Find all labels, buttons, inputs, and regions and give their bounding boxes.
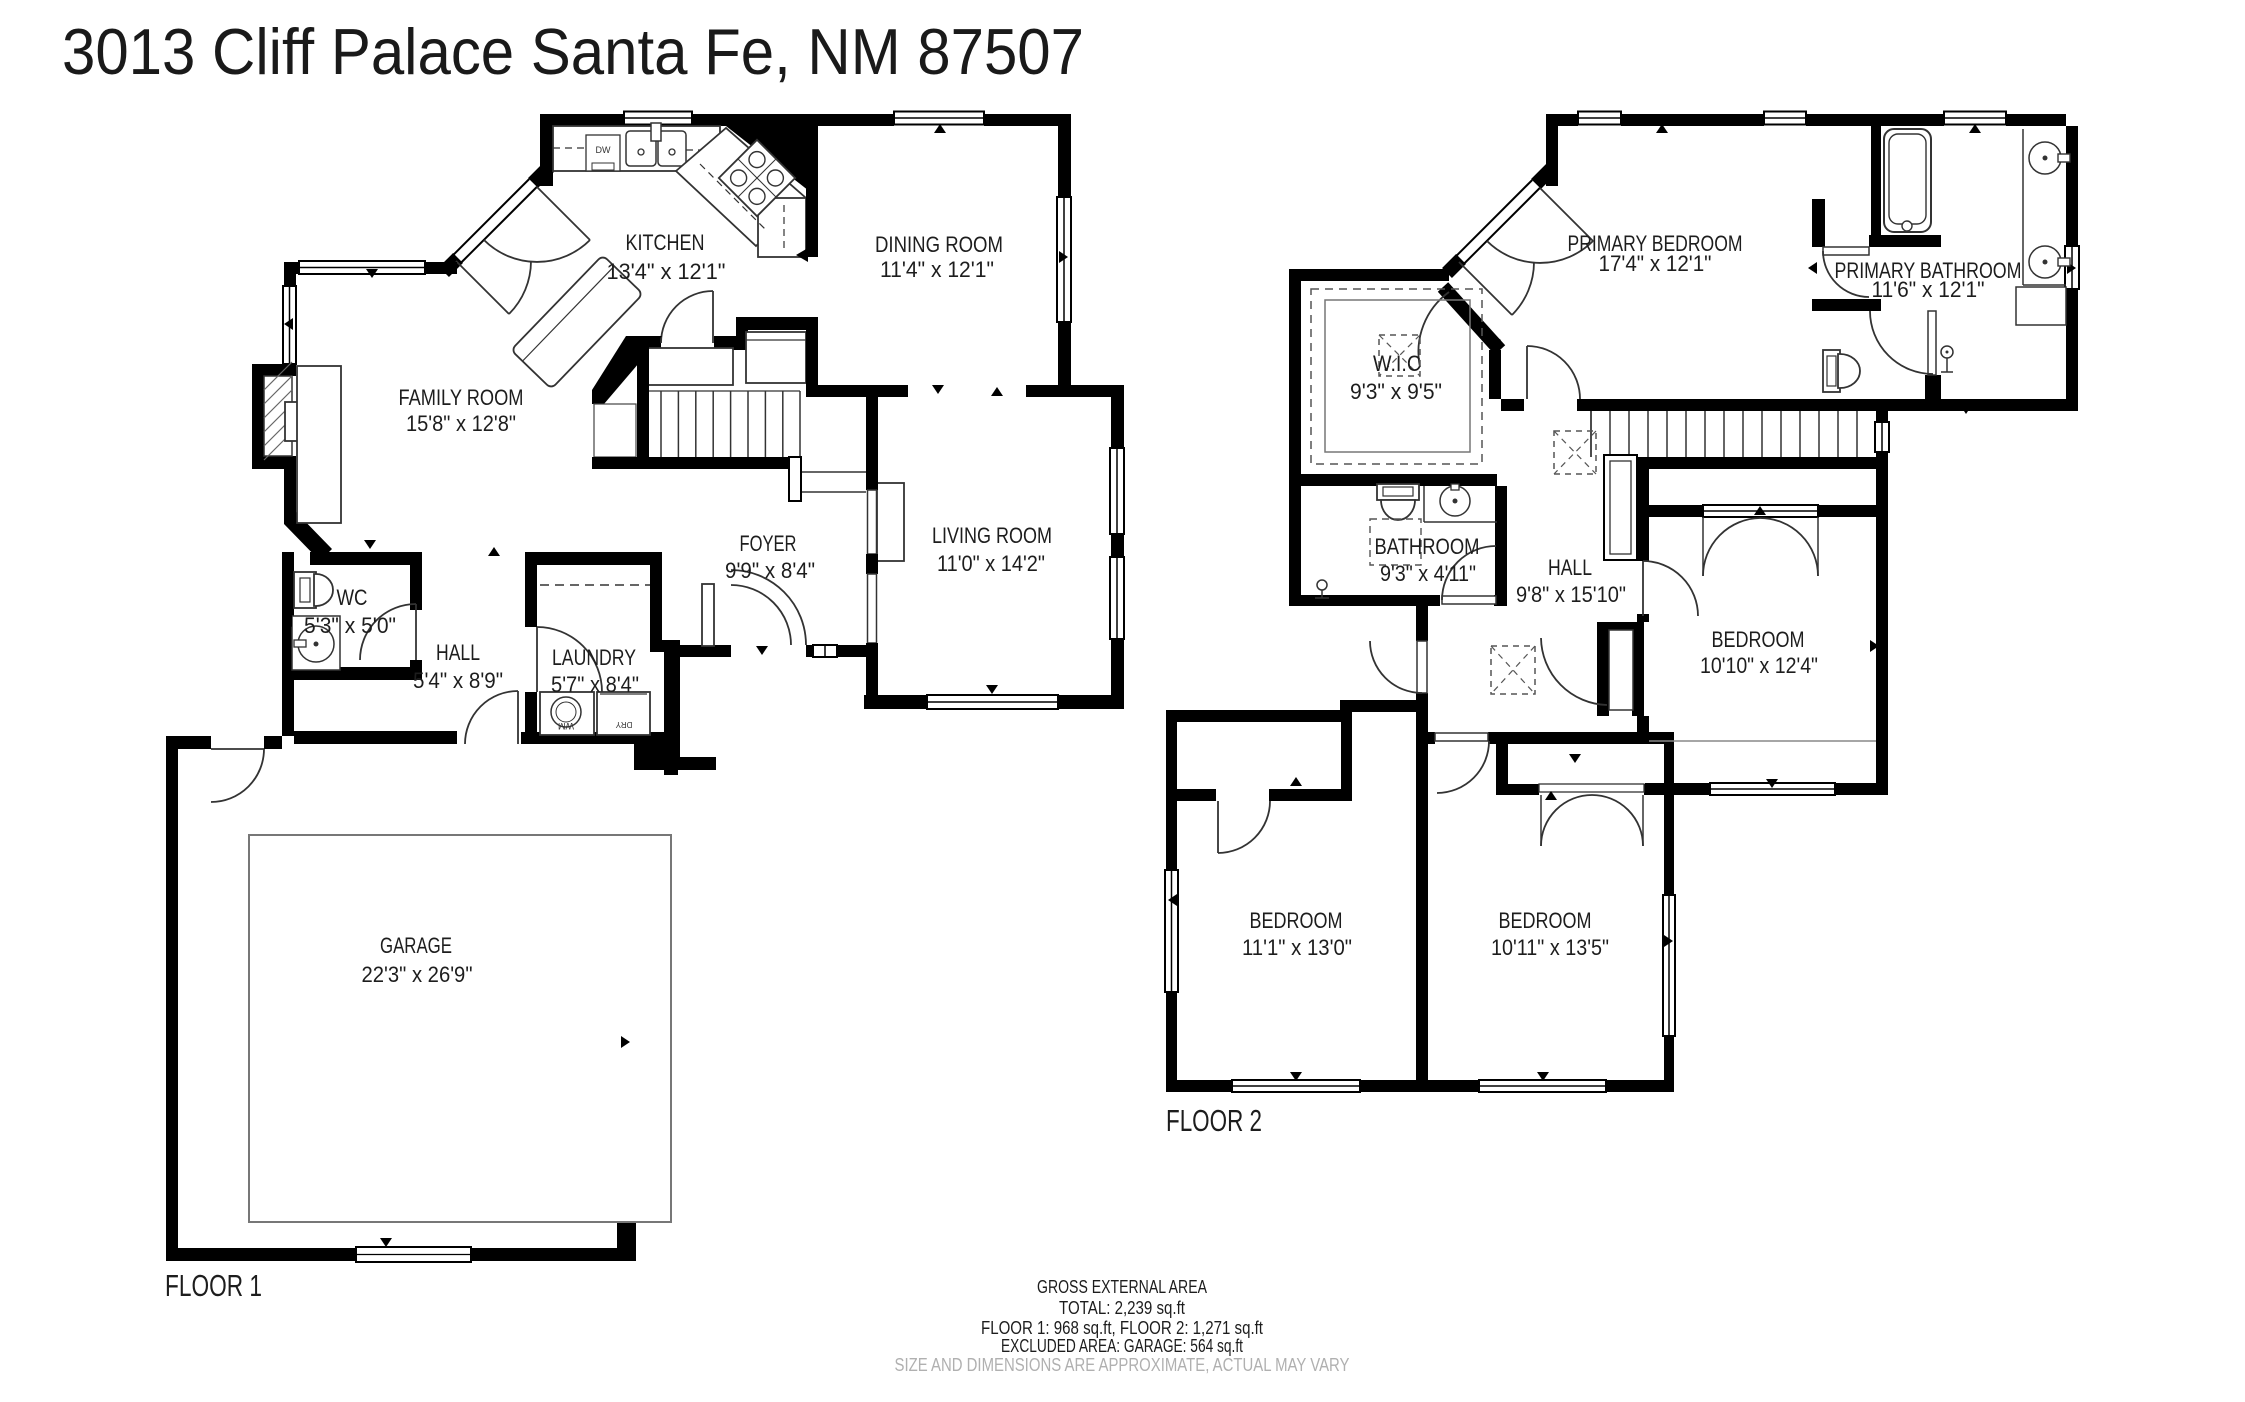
svg-text:LIVING ROOM: LIVING ROOM <box>932 523 1052 548</box>
svg-text:FLOOR 1: FLOOR 1 <box>165 1269 262 1303</box>
svg-text:SIZE AND DIMENSIONS ARE APPROX: SIZE AND DIMENSIONS ARE APPROXIMATE, ACT… <box>895 1355 1350 1375</box>
svg-text:11'0" x 14'2": 11'0" x 14'2" <box>937 551 1045 576</box>
svg-text:FLOOR 2: FLOOR 2 <box>1166 1104 1262 1138</box>
svg-text:15'8" x 12'8": 15'8" x 12'8" <box>406 411 516 436</box>
svg-text:10'11" x 13'5": 10'11" x 13'5" <box>1491 935 1609 960</box>
svg-text:10'10" x 12'4": 10'10" x 12'4" <box>1700 653 1818 678</box>
svg-text:GARAGE: GARAGE <box>380 933 452 958</box>
svg-text:W.I.C: W.I.C <box>1373 351 1421 376</box>
svg-text:FOYER: FOYER <box>740 531 797 556</box>
svg-text:FAMILY ROOM: FAMILY ROOM <box>399 385 524 410</box>
svg-text:EXCLUDED AREA: GARAGE: 564 sq.: EXCLUDED AREA: GARAGE: 564 sq.ft <box>1001 1336 1243 1356</box>
svg-text:BATHROOM: BATHROOM <box>1375 534 1480 559</box>
svg-text:9'8" x 15'10": 9'8" x 15'10" <box>1516 582 1626 607</box>
svg-text:9'3" x 4'11": 9'3" x 4'11" <box>1380 561 1476 586</box>
svg-text:22'3" x 26'9": 22'3" x 26'9" <box>362 962 473 987</box>
svg-text:5'4" x 8'9": 5'4" x 8'9" <box>413 668 503 693</box>
svg-text:13'4" x 12'1": 13'4" x 12'1" <box>607 259 726 284</box>
svg-text:3013 Cliff Palace Santa Fe, NM: 3013 Cliff Palace Santa Fe, NM 87507 <box>62 16 1084 88</box>
svg-text:BEDROOM: BEDROOM <box>1712 627 1805 652</box>
svg-text:5'3" x 5'0": 5'3" x 5'0" <box>304 613 396 638</box>
svg-text:DRY: DRY <box>615 720 632 729</box>
svg-text:DINING ROOM: DINING ROOM <box>875 232 1003 257</box>
svg-text:HALL: HALL <box>1548 555 1592 580</box>
svg-text:BEDROOM: BEDROOM <box>1499 908 1592 933</box>
svg-text:9'9" x 8'4": 9'9" x 8'4" <box>725 558 815 583</box>
svg-text:11'1" x 13'0": 11'1" x 13'0" <box>1242 935 1352 960</box>
svg-text:TOTAL: 2,239 sq.ft: TOTAL: 2,239 sq.ft <box>1059 1298 1185 1318</box>
svg-text:HALL: HALL <box>436 640 480 665</box>
svg-text:DW: DW <box>596 145 611 155</box>
svg-text:FLOOR 1: 968 sq.ft, FLOOR 2: 1: FLOOR 1: 968 sq.ft, FLOOR 2: 1,271 sq.ft <box>981 1318 1263 1338</box>
svg-text:WC: WC <box>337 585 368 610</box>
svg-text:11'6" x 12'1": 11'6" x 12'1" <box>1872 277 1985 302</box>
svg-text:LAUNDRY: LAUNDRY <box>552 645 636 670</box>
svg-text:9'3" x 9'5": 9'3" x 9'5" <box>1350 379 1442 404</box>
svg-text:KITCHEN: KITCHEN <box>626 230 705 255</box>
svg-text:5'7" x 8'4": 5'7" x 8'4" <box>551 672 639 697</box>
svg-text:17'4" x 12'1": 17'4" x 12'1" <box>1599 251 1712 276</box>
svg-text:BEDROOM: BEDROOM <box>1250 908 1343 933</box>
svg-text:WM: WM <box>558 721 574 731</box>
svg-text:11'4" x 12'1": 11'4" x 12'1" <box>880 257 994 282</box>
svg-text:GROSS EXTERNAL AREA: GROSS EXTERNAL AREA <box>1037 1277 1207 1297</box>
